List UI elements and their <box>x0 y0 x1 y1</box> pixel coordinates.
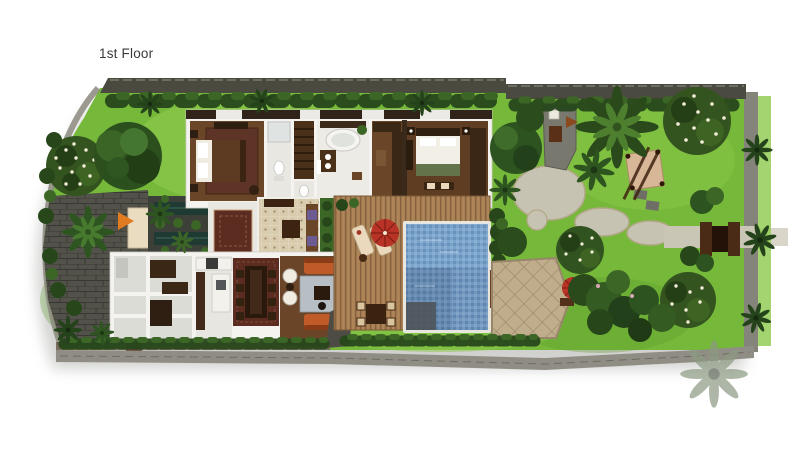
dining-room <box>233 258 279 326</box>
guest-bedroom <box>402 120 488 208</box>
service-rooms <box>114 256 192 346</box>
stairs <box>294 121 314 179</box>
kitchen-island <box>212 274 230 312</box>
console <box>264 199 294 207</box>
floor-plan-page: 1st Floor <box>0 0 801 451</box>
chair <box>249 185 259 195</box>
entrance-gate <box>700 222 740 256</box>
closet <box>470 128 486 200</box>
hedge-strip <box>320 198 334 260</box>
palm-shadow <box>680 340 748 408</box>
upper-wing <box>186 110 492 208</box>
floor-plan-rendering <box>0 0 801 451</box>
lounge-chair <box>283 269 297 283</box>
wardrobe <box>372 121 402 207</box>
pool-parasol <box>371 219 399 247</box>
toilet <box>300 185 309 197</box>
inner-hall <box>208 202 258 258</box>
kitchen <box>196 256 232 340</box>
tub-bathroom <box>317 121 369 201</box>
toilet <box>274 161 284 175</box>
tv-console <box>214 122 248 129</box>
planter <box>336 199 348 211</box>
lounge-chair <box>283 291 297 305</box>
ensuite-bathroom <box>267 121 291 201</box>
foyer-table <box>282 220 300 238</box>
master-bedroom <box>190 121 264 201</box>
entry-foyer <box>258 198 320 260</box>
swimming-pool <box>403 221 491 333</box>
pool-step <box>406 302 436 330</box>
plant <box>357 125 367 135</box>
coffee-table <box>314 286 330 300</box>
frangipani-tree <box>663 87 731 155</box>
planter <box>349 198 359 208</box>
large-tree <box>94 122 162 190</box>
round-tree <box>516 104 544 132</box>
shower <box>268 122 290 142</box>
frangipani-tree <box>556 226 604 274</box>
